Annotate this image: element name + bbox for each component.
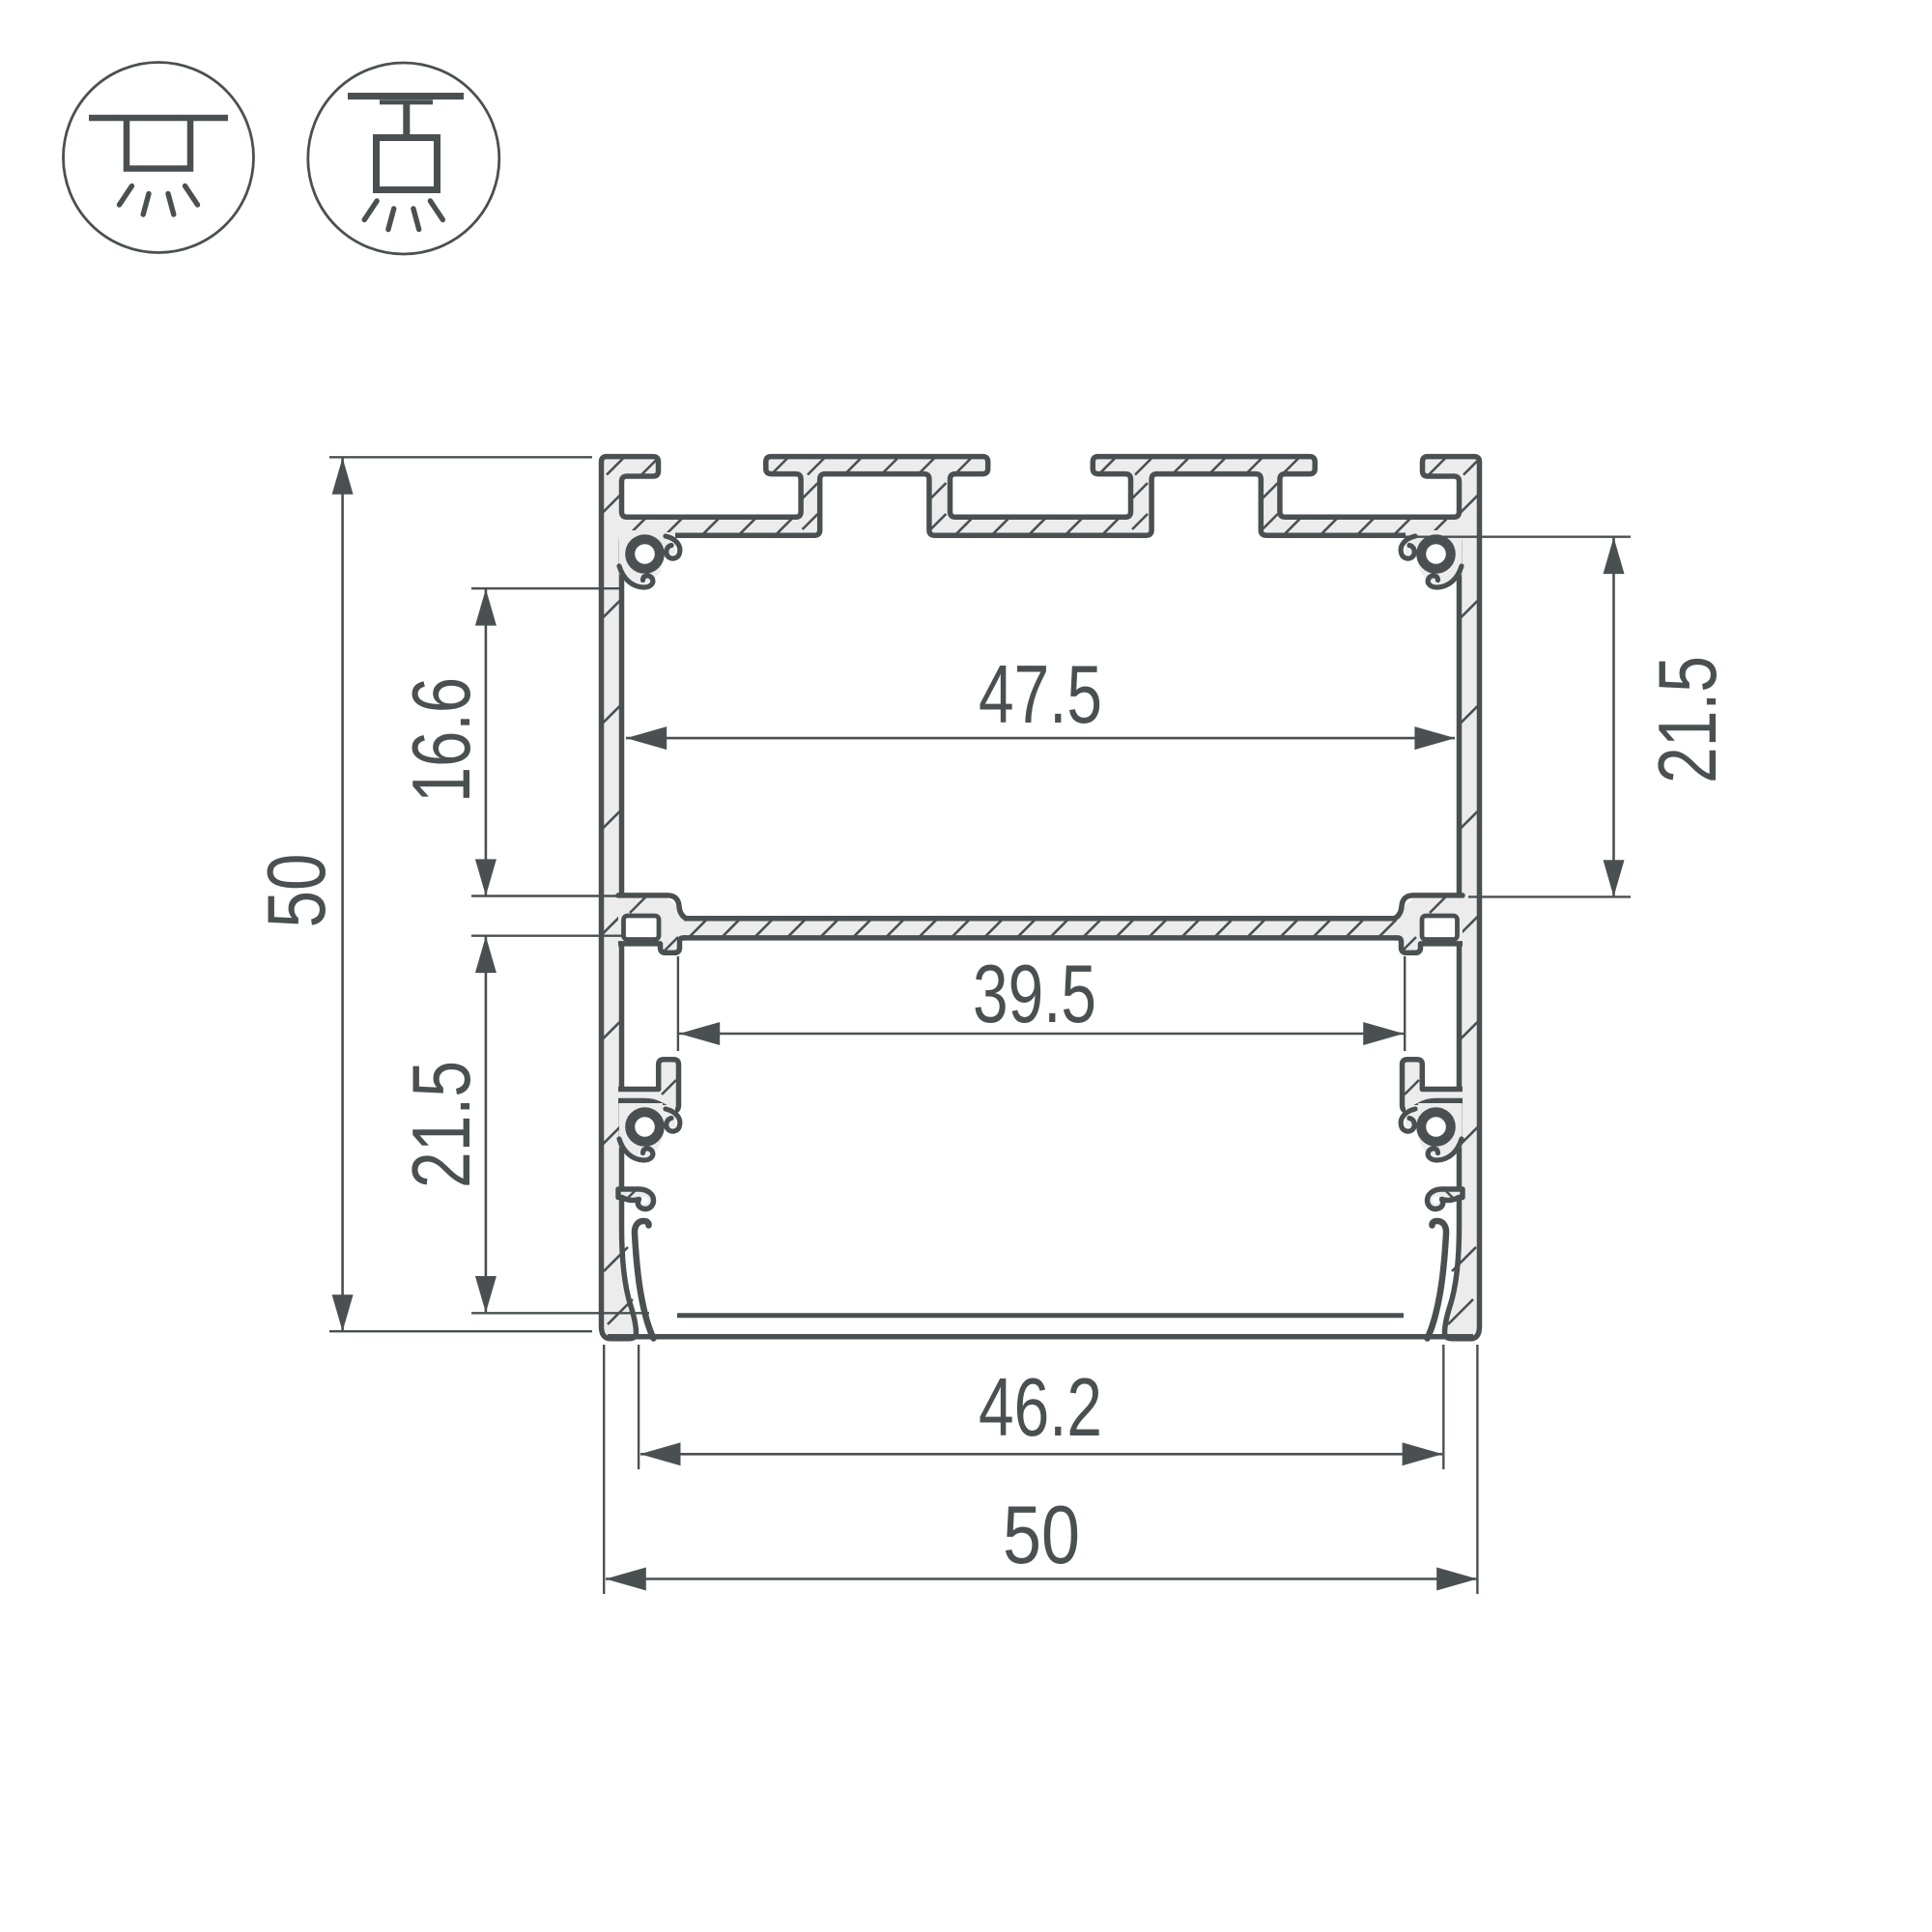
svg-text:16.6: 16.6 [396,677,488,803]
svg-text:21.5: 21.5 [396,1061,488,1188]
svg-text:50: 50 [1003,1490,1080,1581]
svg-text:46.2: 46.2 [979,1362,1102,1454]
svg-text:47.5: 47.5 [979,649,1102,741]
svg-text:21.5: 21.5 [1642,656,1734,783]
svg-text:39.5: 39.5 [973,949,1096,1040]
svg-text:50: 50 [251,854,343,928]
